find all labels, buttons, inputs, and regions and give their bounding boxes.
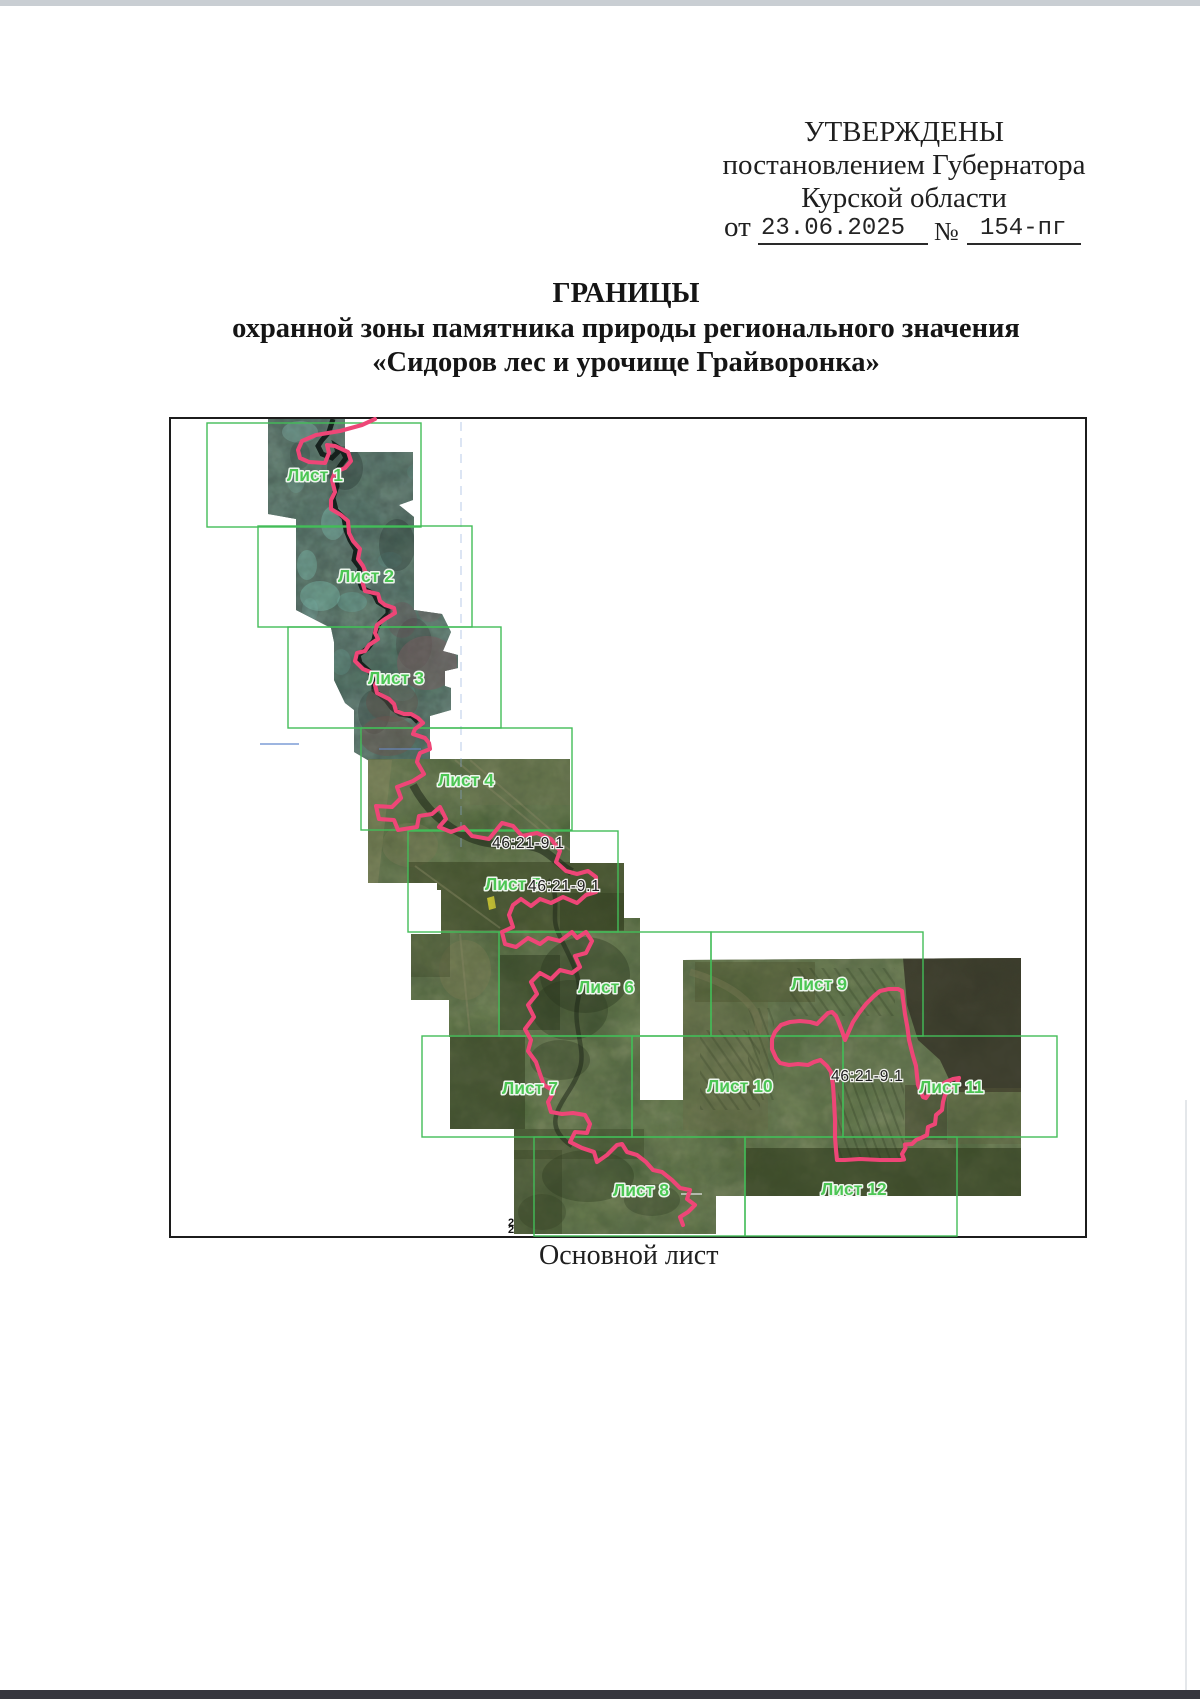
- svg-text:Лист 3: Лист 3: [368, 668, 424, 688]
- svg-text:Лист 8: Лист 8: [613, 1180, 669, 1200]
- svg-text:Лист 9: Лист 9: [791, 974, 847, 994]
- svg-text:Лист 7: Лист 7: [502, 1078, 558, 1098]
- svg-text:Лист 6: Лист 6: [578, 977, 634, 997]
- svg-text:46:21-9.1: 46:21-9.1: [492, 835, 565, 852]
- svg-text:Лист 12: Лист 12: [821, 1179, 887, 1199]
- svg-text:Лист 4: Лист 4: [438, 770, 494, 790]
- svg-text:2: 2: [508, 1224, 514, 1236]
- svg-text:Лист 11: Лист 11: [919, 1077, 984, 1097]
- svg-text:46:21-9.1: 46:21-9.1: [528, 878, 601, 895]
- svg-text:Лист 10: Лист 10: [707, 1076, 773, 1096]
- svg-text:Лист 2: Лист 2: [338, 566, 394, 586]
- svg-text:46:21-9.1: 46:21-9.1: [831, 1068, 904, 1085]
- svg-text:Лист 1: Лист 1: [287, 465, 343, 485]
